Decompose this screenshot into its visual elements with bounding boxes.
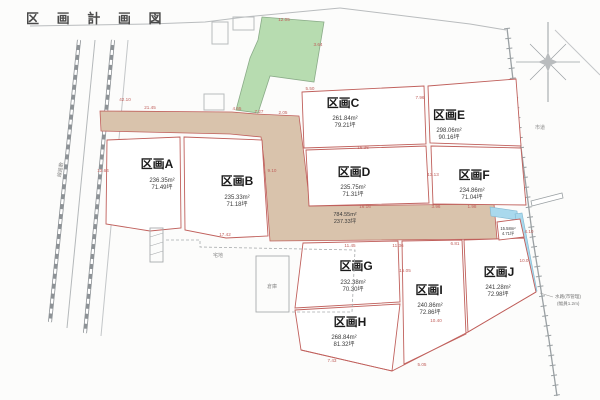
svg-text:11.45: 11.45 bbox=[344, 243, 356, 248]
plot-I-label: 区画I bbox=[415, 283, 442, 297]
svg-text:3.96: 3.96 bbox=[432, 204, 441, 209]
plot-F-label: 区画F bbox=[458, 168, 489, 182]
plot-B-area: 235.33m² bbox=[224, 195, 249, 201]
site-plan-map: 線路敷 市道 784.55m² 237.33坪 bbox=[0, 0, 600, 400]
plot-A-label: 区画A bbox=[141, 157, 174, 171]
svg-text:水路(市管理): 水路(市管理) bbox=[555, 293, 581, 300]
plot-H-area: 268.84m² bbox=[331, 335, 356, 341]
road-area-m2: 784.55m² bbox=[333, 212, 356, 218]
building-outline-2 bbox=[204, 94, 224, 110]
svg-text:2.05: 2.05 bbox=[279, 110, 288, 115]
plot-D-area: 235.75m² bbox=[340, 185, 365, 191]
plot-F-area: 234.86m² bbox=[459, 188, 484, 194]
svg-text:5.50: 5.50 bbox=[306, 86, 315, 91]
page-title: 区 画 計 画 図 bbox=[26, 8, 168, 27]
svg-text:72.98坪: 72.98坪 bbox=[487, 290, 508, 298]
svg-text:7.43: 7.43 bbox=[328, 358, 337, 363]
plot-A bbox=[106, 137, 181, 231]
plot-C bbox=[302, 86, 426, 148]
svg-text:6.81: 6.81 bbox=[451, 241, 460, 246]
building-outline bbox=[212, 22, 228, 44]
svg-text:17.42: 17.42 bbox=[219, 232, 231, 237]
plot-E-area: 298.06m² bbox=[436, 128, 461, 134]
svg-text:4.55: 4.55 bbox=[233, 106, 242, 111]
svg-text:42.10: 42.10 bbox=[119, 97, 131, 102]
shed-label: 倉庫 bbox=[267, 283, 277, 290]
svg-text:7.27: 7.27 bbox=[255, 109, 264, 114]
culvert-marker bbox=[531, 193, 563, 206]
road-right: 市道 bbox=[507, 28, 600, 396]
plot-B-label: 区画B bbox=[221, 174, 254, 188]
svg-text:10.0: 10.0 bbox=[520, 258, 529, 263]
plot-H-label: 区画H bbox=[334, 315, 367, 329]
city-road-label: 市道 bbox=[535, 124, 545, 131]
svg-text:11.36: 11.36 bbox=[392, 243, 404, 248]
svg-text:71.49坪: 71.49坪 bbox=[151, 183, 172, 191]
plot-I-area: 240.86m² bbox=[417, 303, 442, 309]
road-area-tsubo: 237.33坪 bbox=[334, 217, 357, 225]
svg-text:16.36: 16.36 bbox=[357, 145, 369, 150]
svg-text:71.18坪: 71.18坪 bbox=[226, 200, 247, 208]
svg-text:12.05: 12.05 bbox=[278, 17, 290, 22]
svg-text:72.86坪: 72.86坪 bbox=[419, 308, 440, 316]
svg-text:79.21坪: 79.21坪 bbox=[334, 121, 355, 129]
svg-text:9.10: 9.10 bbox=[268, 168, 277, 173]
svg-text:15.05: 15.05 bbox=[399, 268, 411, 273]
svg-text:4.10: 4.10 bbox=[525, 229, 534, 234]
svg-text:5.05: 5.05 bbox=[418, 362, 427, 367]
plot-C-area: 261.84m² bbox=[332, 116, 357, 122]
north-arrow-icon bbox=[516, 22, 580, 102]
svg-text:4.71坪: 4.71坪 bbox=[502, 230, 514, 237]
plot-D-label: 区画D bbox=[338, 165, 371, 179]
plot-G bbox=[295, 241, 400, 308]
plot-E-label: 区画E bbox=[433, 108, 465, 122]
svg-text:16.16: 16.16 bbox=[359, 204, 371, 209]
svg-text:71.31坪: 71.31坪 bbox=[342, 190, 363, 198]
svg-text:7.96: 7.96 bbox=[416, 95, 425, 100]
parcel-label: 宅地 bbox=[213, 252, 223, 259]
plot-J-label: 区画J bbox=[484, 265, 515, 279]
plot-I bbox=[402, 240, 466, 364]
svg-text:10.40: 10.40 bbox=[430, 318, 442, 323]
svg-text:13.64: 13.64 bbox=[97, 168, 109, 173]
plot-A-area: 236.35m² bbox=[149, 178, 174, 184]
svg-text:(幅員1.2m): (幅員1.2m) bbox=[557, 300, 580, 307]
waterway-annotation: 水路(市管理) (幅員1.2m) bbox=[540, 293, 581, 307]
plot-C-label: 区画C bbox=[327, 96, 360, 110]
svg-text:81.32坪: 81.32坪 bbox=[333, 340, 354, 348]
plan-page: 区 画 計 画 図 線路敷 市道 bbox=[0, 0, 600, 400]
svg-text:1.98: 1.98 bbox=[468, 204, 477, 209]
plot-J-area: 241.28m² bbox=[485, 285, 510, 291]
svg-text:90.16坪: 90.16坪 bbox=[438, 133, 459, 141]
plot-G-label: 区画G bbox=[339, 259, 372, 273]
signboard-outline bbox=[233, 17, 254, 30]
svg-text:21.45: 21.45 bbox=[144, 105, 156, 110]
svg-text:13.13: 13.13 bbox=[427, 172, 439, 177]
svg-text:71.04坪: 71.04坪 bbox=[461, 193, 482, 201]
svg-text:3.64: 3.64 bbox=[314, 42, 323, 47]
